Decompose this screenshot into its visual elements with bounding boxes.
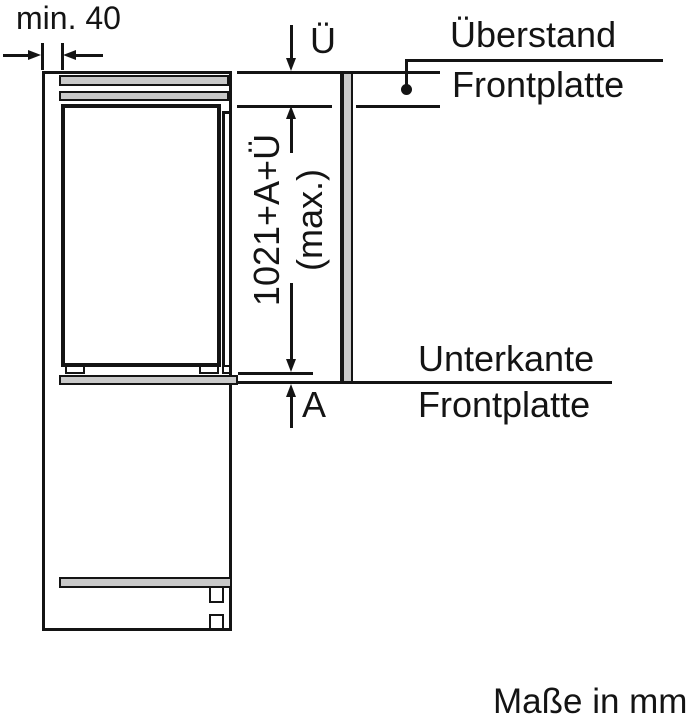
door-hinge-tab-right — [199, 365, 219, 374]
min-gap-arrow-line-left — [3, 54, 29, 57]
plinth-bracket-lower — [209, 614, 224, 630]
door-side-gap-cap — [222, 111, 230, 114]
top-rail-upper — [59, 75, 229, 86]
ueberstand-leader-line — [405, 59, 408, 87]
lower-extension-arrow-line — [290, 390, 293, 428]
plinth-rail — [59, 577, 232, 588]
arrow-down-icon — [286, 359, 296, 372]
door-hinge-tab-left — [65, 365, 85, 374]
front-panel-side-view — [340, 73, 353, 383]
min-gap-tick-left — [41, 43, 44, 70]
door-top-reference-line-right — [356, 105, 440, 108]
cabinet-top-edge — [42, 71, 232, 74]
units-note: Maße in mm — [493, 684, 687, 720]
min-gap-arrow-line-right — [76, 54, 103, 57]
arrow-left-icon — [63, 50, 76, 60]
ueberstand-label-line — [405, 59, 663, 62]
overhang-dimension-label: Ü — [310, 22, 336, 60]
ueberstand-label-line2: Frontplatte — [452, 66, 624, 104]
bottom-rail — [59, 375, 238, 385]
door-bottom-reference-line — [238, 372, 313, 375]
door-side-bottom-tab — [222, 365, 231, 374]
ueberstand-label-line1: Überstand — [450, 16, 616, 54]
panel-height-formula: 1021+A+Ü — [245, 90, 288, 350]
top-rail-lower — [59, 91, 229, 101]
arrow-down-icon — [286, 58, 296, 71]
panel-height-max-note: (max.) — [288, 90, 331, 350]
unterkante-label-line2: Frontplatte — [418, 386, 590, 424]
lower-extension-dimension-label: A — [302, 386, 326, 424]
cabinet-left-edge — [42, 71, 45, 631]
panel-top-reference-line — [237, 71, 440, 74]
plinth-bracket-upper — [209, 586, 224, 603]
installation-diagram: min. 40 Ü 1021+A+Ü (max.) A Überstand Fr… — [0, 0, 691, 720]
cabinet-bottom-edge — [42, 628, 232, 631]
leader-dot-icon — [401, 84, 412, 95]
unterkante-label-line1: Unterkante — [418, 340, 594, 378]
appliance-door — [61, 104, 221, 367]
door-side-gap-line — [222, 111, 225, 367]
cabinet-right-edge — [229, 71, 232, 631]
arrow-right-icon — [28, 50, 41, 60]
min-gap-dimension-label: min. 40 — [16, 2, 121, 36]
panel-height-dimension-label: 1021+A+Ü (max.) — [245, 90, 331, 350]
